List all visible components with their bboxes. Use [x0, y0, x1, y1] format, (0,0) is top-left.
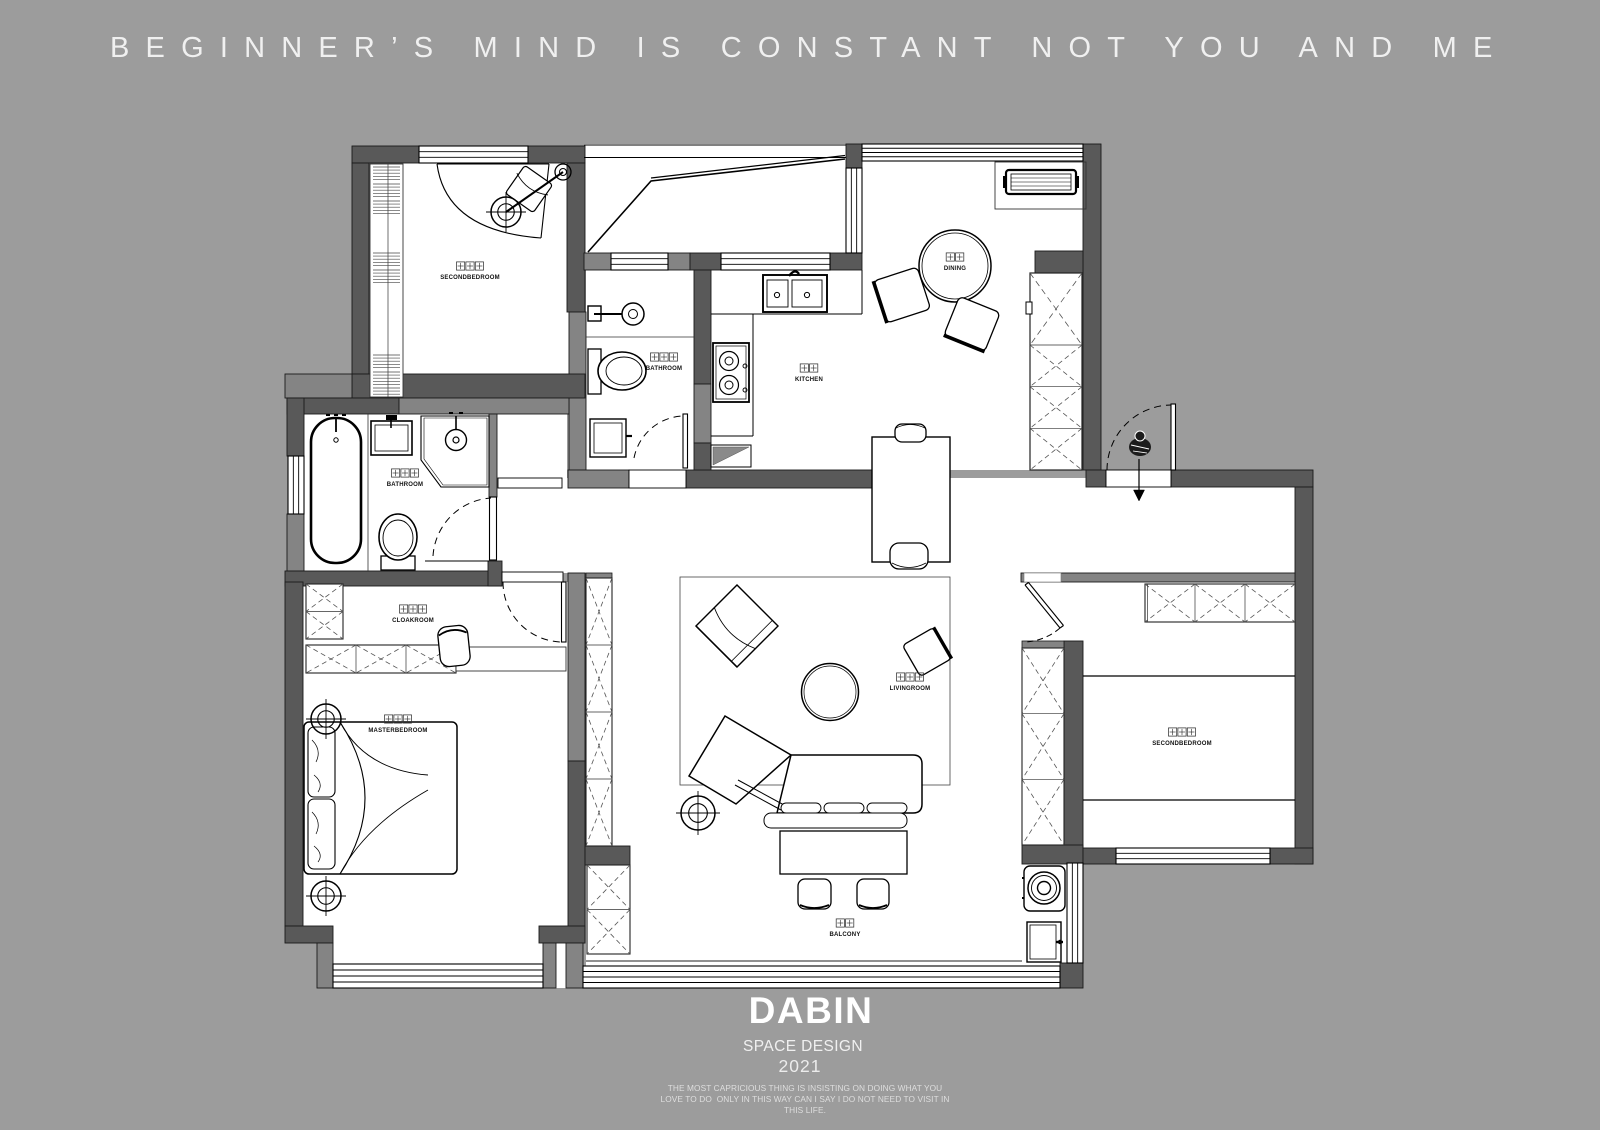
svg-text:THE MOST CAPRICIOUS THING IS I: THE MOST CAPRICIOUS THING IS INSISTING O…: [668, 1083, 943, 1093]
svg-text:BEGINNER’S MIND IS CONSTANT NO: BEGINNER’S MIND IS CONSTANT NOT YOU AND …: [110, 32, 1509, 64]
svg-text:2021: 2021: [779, 1056, 822, 1076]
svg-text:BALCONY: BALCONY: [829, 932, 860, 938]
svg-text:SECONDBEDROOM: SECONDBEDROOM: [440, 275, 500, 281]
svg-text:MASTERBEDROOM: MASTERBEDROOM: [368, 728, 427, 734]
svg-text:CLOAKROOM: CLOAKROOM: [392, 618, 434, 624]
svg-text:THIS LIFE.: THIS LIFE.: [784, 1105, 826, 1115]
svg-text:DABIN: DABIN: [749, 990, 874, 1031]
svg-text:SPACE DESIGN: SPACE DESIGN: [743, 1038, 863, 1055]
svg-text:LOVE TO DO ONLY IN THIS WAY C: LOVE TO DO ONLY IN THIS WAY CAN I SAY I …: [660, 1094, 949, 1104]
svg-text:DINING: DINING: [944, 266, 966, 272]
svg-text:BATHROOM: BATHROOM: [387, 482, 423, 488]
svg-text:SECONDBEDROOM: SECONDBEDROOM: [1152, 741, 1212, 747]
svg-text:BATHROOM: BATHROOM: [646, 366, 682, 372]
svg-text:KITCHEN: KITCHEN: [795, 377, 823, 383]
svg-text:LIVINGROOM: LIVINGROOM: [890, 686, 931, 692]
